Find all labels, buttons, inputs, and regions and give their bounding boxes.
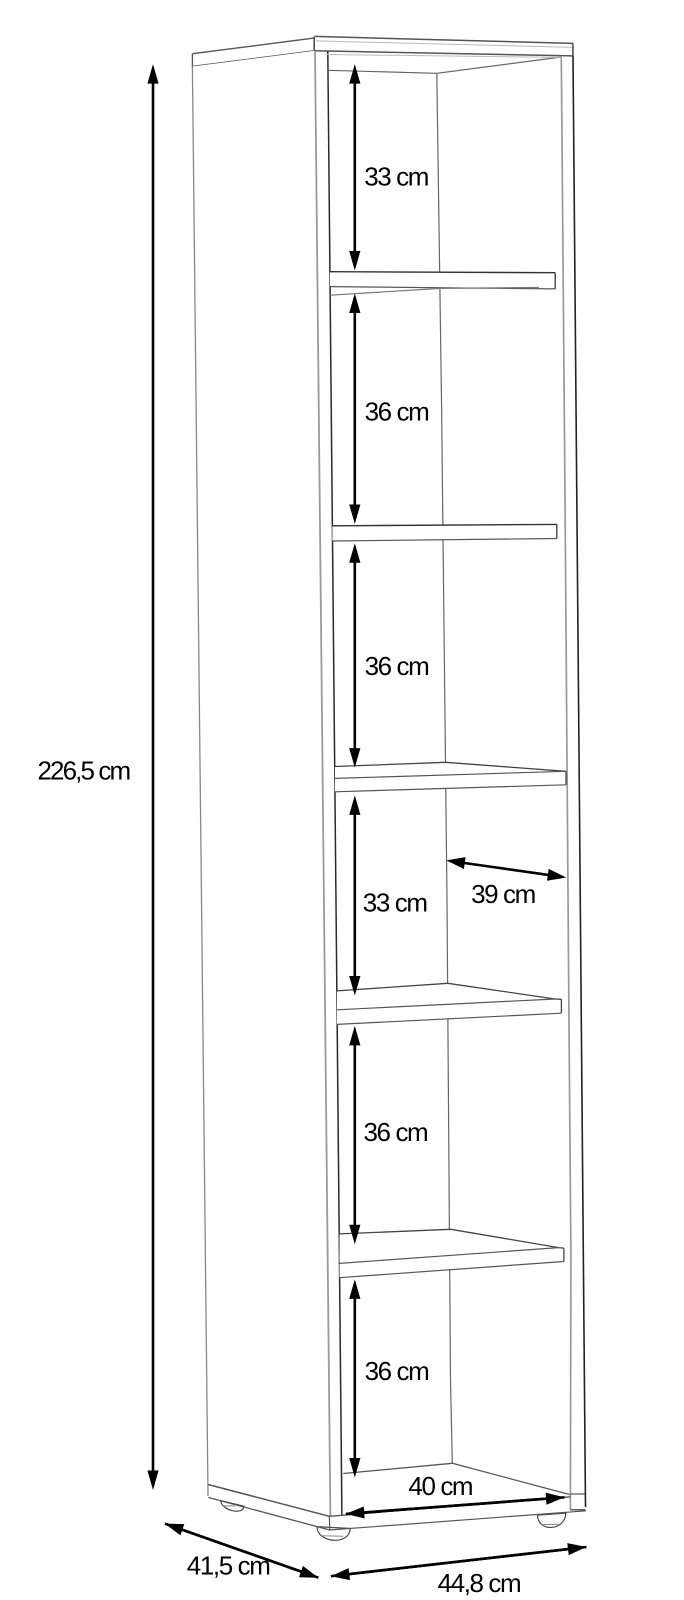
- svg-text:36 cm: 36 cm: [365, 651, 429, 681]
- svg-text:36 cm: 36 cm: [365, 397, 429, 427]
- svg-text:33 cm: 33 cm: [364, 162, 428, 192]
- svg-text:226,5 cm: 226,5 cm: [38, 756, 130, 786]
- svg-text:40 cm: 40 cm: [408, 1471, 472, 1501]
- svg-text:41,5 cm: 41,5 cm: [187, 1551, 270, 1581]
- svg-text:36 cm: 36 cm: [364, 1117, 428, 1147]
- svg-text:36 cm: 36 cm: [365, 1356, 429, 1386]
- svg-text:33 cm: 33 cm: [363, 888, 427, 918]
- svg-text:39 cm: 39 cm: [471, 879, 535, 909]
- svg-text:44,8 cm: 44,8 cm: [438, 1568, 521, 1598]
